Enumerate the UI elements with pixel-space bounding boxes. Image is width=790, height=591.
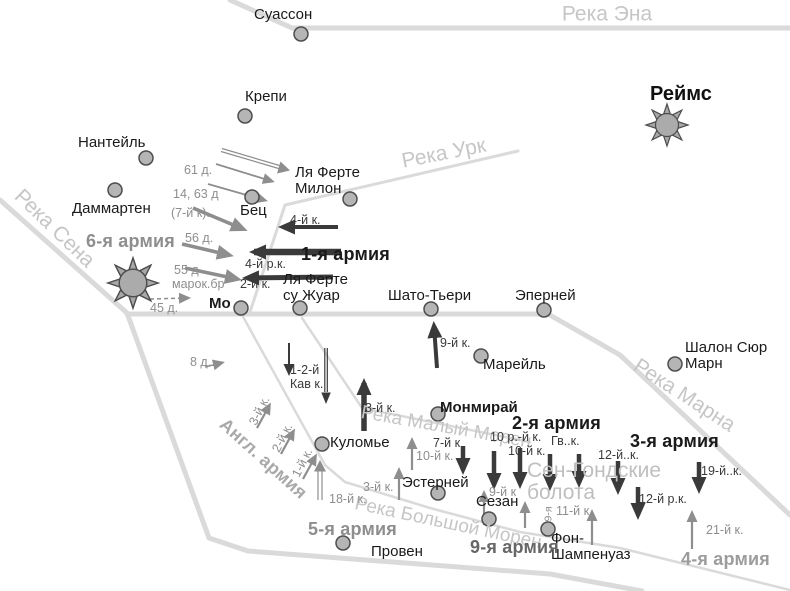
unit-label-12k: 12-й..к. — [598, 449, 639, 463]
unit-label-45d: 45 д. — [150, 302, 178, 316]
army-label-german-1st: 1-я армия — [301, 245, 390, 264]
city-label-coulommiers: Куломье — [330, 435, 390, 451]
city-label-betz: Бец — [240, 203, 267, 219]
town-dot-soissons — [294, 27, 308, 41]
city-star-icon-reims — [646, 104, 688, 146]
arrow-45d-dashed — [150, 298, 187, 299]
town-dot-chalons — [668, 357, 682, 371]
unit-label-10rk: 10 р.-й к. — [490, 431, 541, 445]
river-aisne-line — [230, 0, 790, 28]
city-label-reims: Реймс — [650, 84, 712, 106]
town-dot-crepy — [238, 109, 252, 123]
unit-label-9k-sezanne: 9-й к — [489, 486, 516, 500]
unit-label-56d: 56 д. — [185, 232, 213, 246]
army-label-german-4th: 4-я армия — [681, 550, 770, 569]
army-label-french-5th: 5-я армия — [308, 520, 397, 539]
town-dot-meaux — [234, 301, 248, 315]
arrow-9k-chateau — [434, 326, 437, 368]
unit-label-7k-esternay: 7-й к — [433, 437, 460, 451]
city-label-mareuil: Марейль — [483, 357, 546, 373]
city-label-provins: Провен — [371, 544, 423, 560]
unit-label-marok: марок.бр — [172, 278, 225, 292]
unit-label-18k: 18-й к. — [329, 493, 366, 507]
army-label-french-9th: 9-я армия — [470, 538, 559, 557]
city-label-soissons: Суассон — [254, 7, 312, 23]
battle-of-marne-map: Река Эна Река Урк Река Сена Река Марна Р… — [0, 0, 790, 591]
unit-label-4k: 4-й к. — [290, 214, 321, 228]
city-label-montmirail: Монмирай — [440, 400, 518, 416]
unit-label-21k: 21-й к. — [706, 524, 743, 538]
city-label-chalons: Шалон Сюр Марн — [685, 340, 783, 372]
city-label-dammartin: Даммартен — [72, 201, 151, 217]
unit-label-12rk: 12-й р.к. — [639, 493, 687, 507]
unit-label-10k-esternay: 10-й к. — [416, 450, 453, 464]
city-label-fere-champenoise: Фон-Шампенуаз — [551, 531, 639, 563]
arrow-61d — [216, 164, 271, 181]
city-label-la-ferte-sous-jouarre: Ля Ферте су Жуар — [283, 272, 359, 304]
unit-label-4rk: 4-й р.к. — [245, 258, 286, 272]
city-label-chateau-thierry: Шато-Тьери — [388, 288, 471, 304]
arrow-double-top-b — [221, 152, 282, 170]
army-label-french-6th: 6-я армия — [86, 232, 175, 251]
unit-label-61d: 61 д. — [184, 164, 212, 178]
unit-label-10k-g2: 10-й к. — [508, 445, 545, 459]
unit-label-3k-fr5: 3-й к. — [363, 481, 394, 495]
city-label-crepy: Крепи — [245, 89, 287, 105]
town-dot-dammartin — [108, 183, 122, 197]
unit-label-guards: Гв..к. — [551, 435, 580, 449]
city-label-esternay: Эстерней — [402, 475, 469, 491]
unit-label-9k-chateau: 9-й к. — [440, 337, 471, 351]
arrow-double-top-head — [277, 162, 290, 174]
town-dot-epernay — [537, 303, 551, 317]
unit-label-2k: 2-й к. — [240, 278, 271, 292]
unit-label-7k: (7-й к). — [171, 207, 210, 221]
city-label-nanteuil: Нантейль — [78, 135, 145, 151]
river-label-aisne: Река Эна — [562, 4, 652, 27]
city-label-meaux: Мо — [209, 296, 231, 312]
town-dot-coulommiers — [315, 437, 329, 451]
unit-label-55d: 55 д — [174, 264, 199, 278]
city-label-la-ferte-milon: Ля Ферте Милон — [295, 165, 367, 197]
unit-label-8d: 8 д. — [190, 356, 211, 370]
unit-label-14-63d: 14, 63 д — [173, 188, 219, 202]
city-label-epernay: Эперней — [515, 288, 576, 304]
town-dot-nanteuil — [139, 151, 153, 165]
unit-label-cavalry-1-2: 1-2-й Кав к. — [290, 364, 338, 391]
unit-label-19k: 19-й..к. — [701, 465, 742, 479]
arrow-cavalry-2-head — [321, 393, 331, 405]
unit-label-rotated-9: 9-я — [543, 506, 554, 521]
unit-label-3k-montmirail: 3-й к. — [365, 402, 396, 416]
arrow-56d — [182, 244, 229, 255]
arrow-double-top-a — [222, 149, 283, 167]
army-label-german-3rd: 3-я армия — [630, 432, 719, 451]
unit-label-11k: 11-й к — [556, 505, 589, 519]
